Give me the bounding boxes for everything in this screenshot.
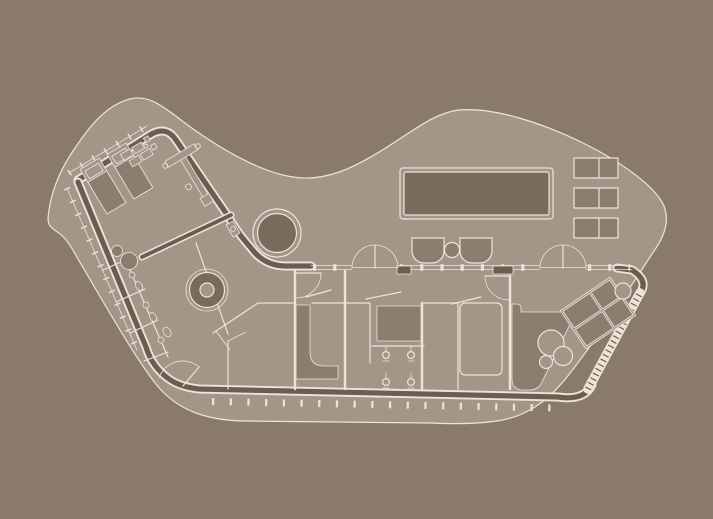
bedside-table bbox=[615, 283, 631, 299]
terrace-side-table bbox=[445, 243, 460, 258]
round-seat-medium bbox=[554, 347, 573, 366]
pool-water bbox=[404, 172, 549, 215]
pond-water bbox=[258, 214, 297, 253]
wash-basin-2 bbox=[143, 302, 149, 308]
round-table-center bbox=[200, 283, 214, 297]
decor-stone-large bbox=[121, 253, 138, 270]
round-seat-small bbox=[540, 356, 553, 369]
lounger-pair-3 bbox=[574, 218, 618, 238]
plunge-pond bbox=[253, 209, 301, 257]
terrace-armchair-right bbox=[460, 238, 492, 263]
facade-column-east bbox=[493, 266, 513, 274]
lounger-pair-1 bbox=[574, 158, 618, 178]
shower-bench bbox=[377, 306, 421, 341]
lounger bbox=[574, 158, 618, 178]
lounger bbox=[574, 218, 618, 238]
floor-plan bbox=[0, 0, 713, 519]
wash-basin-3 bbox=[158, 337, 164, 343]
wash-basin-1 bbox=[129, 272, 135, 278]
facade-column-west bbox=[397, 266, 411, 274]
floor-plan-page bbox=[0, 0, 713, 519]
lounger bbox=[574, 188, 618, 208]
decor-stone-small bbox=[112, 246, 123, 257]
hall-round-table bbox=[186, 269, 228, 311]
terrace-armchair-left bbox=[412, 238, 444, 263]
lounger-pair-2 bbox=[574, 188, 618, 208]
